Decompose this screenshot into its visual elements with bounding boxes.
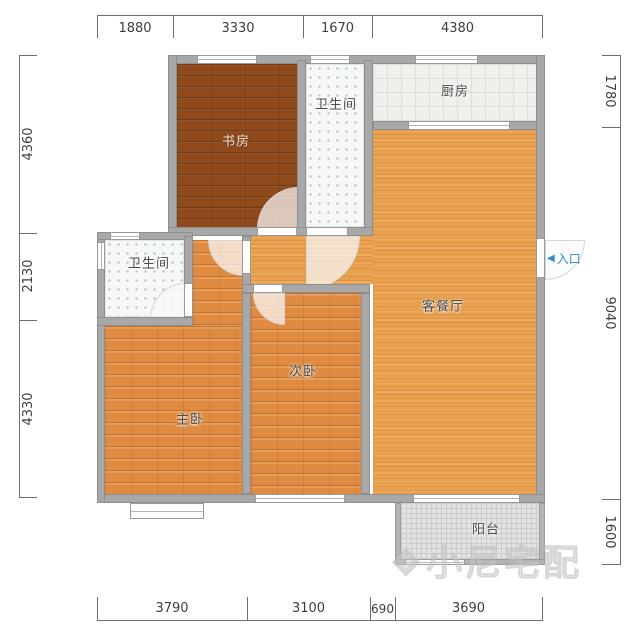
- window-bathroom-top: [310, 55, 350, 64]
- floor-master-bedroom: [105, 326, 242, 494]
- dim-top-2: 3330: [173, 21, 303, 37]
- ruler-left-tick: [19, 497, 37, 498]
- room-label-bathroom-2: 卫生间: [128, 253, 170, 272]
- dim-right-1: 1780: [601, 74, 617, 107]
- room-label-kitchen: 厨房: [441, 81, 469, 100]
- wall-study-right: [297, 60, 306, 236]
- dim-left-3: 4330: [21, 392, 37, 425]
- ruler-left-tick: [19, 320, 37, 321]
- wall-bathroom-2-bottom: [97, 317, 193, 326]
- room-label-second-bedroom: 次卧: [289, 361, 317, 380]
- ruler-bottom-line: [97, 620, 543, 621]
- window-second-bedroom-bottom: [255, 494, 345, 503]
- dim-right-2: 9040: [601, 296, 617, 329]
- study-door: [257, 227, 297, 236]
- balcony-sliding-door: [413, 494, 520, 503]
- dim-bottom-2: 3100: [247, 601, 370, 617]
- second-bedroom-door: [253, 284, 283, 293]
- dim-left-1: 4360: [21, 127, 37, 160]
- dim-bottom-3: 690: [369, 601, 396, 617]
- window-bathroom-2-left: [97, 242, 105, 270]
- room-label-master-bedroom: 主卧: [176, 409, 204, 428]
- ruler-right-tick: [602, 127, 620, 128]
- window-bathroom-2-top: [110, 232, 140, 240]
- watermark-logo-icon: ◈: [393, 540, 422, 580]
- dim-left-2: 2130: [21, 259, 37, 292]
- wall-right: [536, 55, 545, 503]
- bathroom-top-door: [306, 227, 348, 236]
- master-bay-window: [130, 503, 204, 519]
- ruler-left-tick: [19, 233, 37, 234]
- window-kitchen-top: [415, 55, 478, 64]
- floor-bathroom-top: [306, 64, 364, 227]
- dim-bottom-4: 3690: [395, 601, 542, 617]
- entrance-door: [536, 238, 545, 278]
- wall-second-living-divider: [361, 293, 370, 494]
- ruler-right-tick: [602, 564, 620, 565]
- entrance-marker: ◀ 入口: [547, 250, 581, 267]
- wall-master-second-divider: [242, 293, 251, 494]
- ruler-right-tick: [602, 55, 620, 56]
- corridor-door: [242, 240, 251, 274]
- wall-bathroom-top-right: [364, 60, 373, 236]
- dim-bottom-1: 3790: [97, 601, 247, 617]
- ruler-top-line: [97, 15, 543, 16]
- room-label-living-dining: 客餐厅: [422, 296, 464, 315]
- room-label-study: 书房: [222, 131, 250, 150]
- floor-second-bedroom: [251, 293, 361, 494]
- dim-top-1: 1880: [97, 21, 173, 37]
- ruler-right-tick: [602, 499, 620, 500]
- ruler-bottom-tick: [542, 597, 543, 620]
- bathroom-2-door: [184, 283, 193, 317]
- ruler-left-tick: [19, 55, 37, 56]
- dim-top-4: 4380: [372, 21, 543, 37]
- ruler-left-line: [19, 55, 20, 498]
- watermark-text: 小尼宅配: [426, 534, 582, 586]
- entrance-arrow-icon: ◀: [547, 254, 555, 264]
- entrance-label: 入口: [557, 250, 581, 267]
- watermark: ◈ 小尼宅配: [393, 534, 582, 586]
- window-study-top: [197, 55, 257, 64]
- wall-study-left: [168, 55, 177, 236]
- floor-plan-canvas: 1880 3330 1670 4380 3790 3100 690 3690 4…: [0, 0, 640, 640]
- ruler-right-line: [620, 55, 621, 565]
- dim-right-3: 1600: [601, 515, 617, 548]
- room-label-bathroom-top: 卫生间: [315, 94, 357, 113]
- wall-left: [97, 232, 105, 503]
- kitchen-sliding-door: [408, 121, 510, 130]
- dim-top-3: 1670: [303, 21, 372, 37]
